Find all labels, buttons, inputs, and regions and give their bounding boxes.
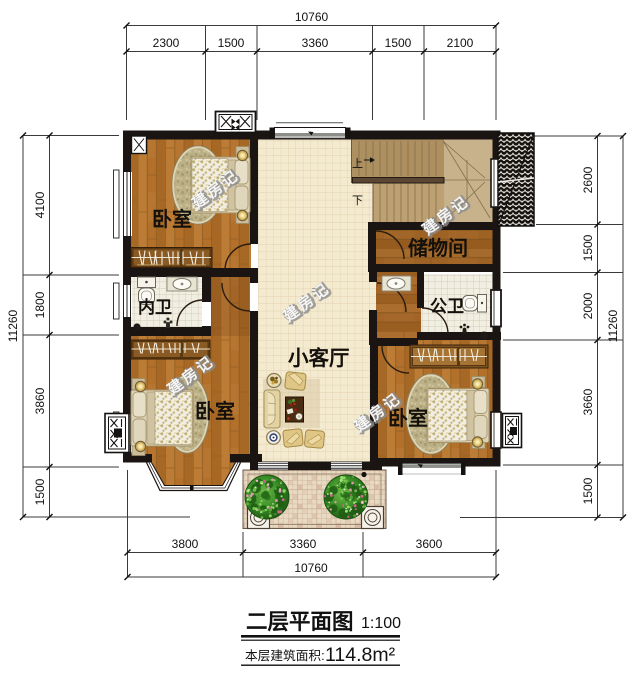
svg-text:1500: 1500 xyxy=(581,477,595,504)
svg-text:二层平面图: 二层平面图 xyxy=(246,610,354,634)
svg-text:10760: 10760 xyxy=(294,561,328,575)
svg-text:小客厅: 小客厅 xyxy=(288,346,350,370)
svg-text:3600: 3600 xyxy=(416,537,443,551)
svg-text:2300: 2300 xyxy=(153,36,180,50)
svg-text:本层建筑面积:: 本层建筑面积: xyxy=(245,648,325,663)
svg-text:内卫: 内卫 xyxy=(138,297,172,317)
svg-text:2000: 2000 xyxy=(581,292,595,319)
svg-text:1500: 1500 xyxy=(218,36,245,50)
svg-text:3360: 3360 xyxy=(302,36,329,50)
svg-text:3860: 3860 xyxy=(33,387,47,414)
svg-text:下: 下 xyxy=(352,195,363,207)
svg-text:2600: 2600 xyxy=(581,166,595,193)
svg-text:3800: 3800 xyxy=(172,537,199,551)
svg-text:公卫: 公卫 xyxy=(430,297,464,316)
svg-text:1500: 1500 xyxy=(581,234,595,261)
svg-text:114.8m²: 114.8m² xyxy=(325,644,396,666)
svg-text:卧室: 卧室 xyxy=(152,207,192,231)
svg-text:10760: 10760 xyxy=(295,10,329,24)
svg-text:3360: 3360 xyxy=(290,537,317,551)
svg-text:1500: 1500 xyxy=(385,36,412,50)
svg-text:1500: 1500 xyxy=(33,478,47,505)
svg-text:1800: 1800 xyxy=(33,291,47,318)
svg-text:储物间: 储物间 xyxy=(408,236,468,260)
svg-text:11260: 11260 xyxy=(606,309,620,342)
svg-text:1:100: 1:100 xyxy=(361,615,401,632)
svg-text:11260: 11260 xyxy=(6,309,20,342)
svg-text:卧室: 卧室 xyxy=(195,399,235,423)
svg-text:2100: 2100 xyxy=(447,36,474,50)
svg-text:3660: 3660 xyxy=(581,388,595,415)
svg-text:4100: 4100 xyxy=(33,191,47,218)
svg-text:上: 上 xyxy=(352,157,363,170)
